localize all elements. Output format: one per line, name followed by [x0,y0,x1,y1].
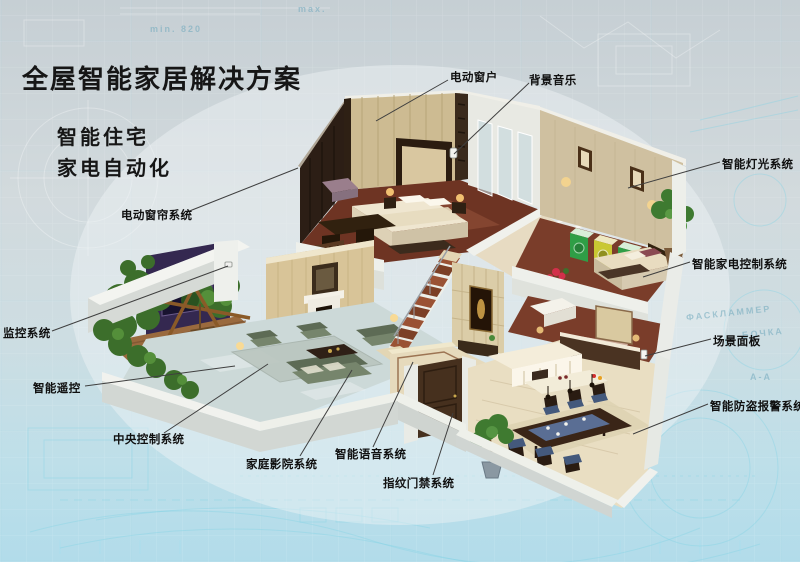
callout-smart-voice-system: 智能语音系统 [335,446,406,462]
callout-monitoring-system: 监控系统 [3,325,51,341]
leader-appliance-control [643,262,690,277]
leader-background-music [454,83,529,154]
smart-home-poster: min. 820 max. ФАСКЛАММЕР БОЧКА А-А [0,0,800,562]
leader-burglar-alarm [633,404,708,434]
callout-background-music: 背景音乐 [529,72,577,88]
leader-smart-remote [85,366,235,386]
subtitle-line-2: 家电自动化 [57,152,172,181]
callout-fingerprint-access-system: 指纹门禁系统 [383,475,454,491]
leader-electric-curtain [187,168,298,212]
callout-burglar-alarm-system: 智能防盗报警系统 [710,398,800,414]
subtitle-line-1: 智能住宅 [57,121,149,150]
leader-scene-panel [645,339,711,356]
callout-central-control-system: 中央控制系统 [113,431,184,447]
callout-electric-curtain-system: 电动窗帘系统 [121,207,192,223]
callout-home-theater-system: 家庭影院系统 [246,456,317,472]
page-title: 全屋智能家居解决方案 [22,59,302,96]
callout-smart-appliance-control: 智能家电控制系统 [692,256,787,272]
leader-central-control [164,364,268,433]
leader-electric-window [376,80,448,121]
callout-electric-window: 电动窗户 [450,69,498,85]
callout-smart-lighting-system: 智能灯光系统 [722,156,793,172]
leader-smart-lighting [628,162,720,188]
leader-home-theater [300,370,352,456]
callout-scene-panel: 场景面板 [713,333,761,349]
callout-smart-remote-control: 智能遥控 [33,380,81,396]
leader-fingerprint-access [433,413,453,475]
leader-monitoring [52,266,228,331]
leader-smart-voice [373,362,413,447]
